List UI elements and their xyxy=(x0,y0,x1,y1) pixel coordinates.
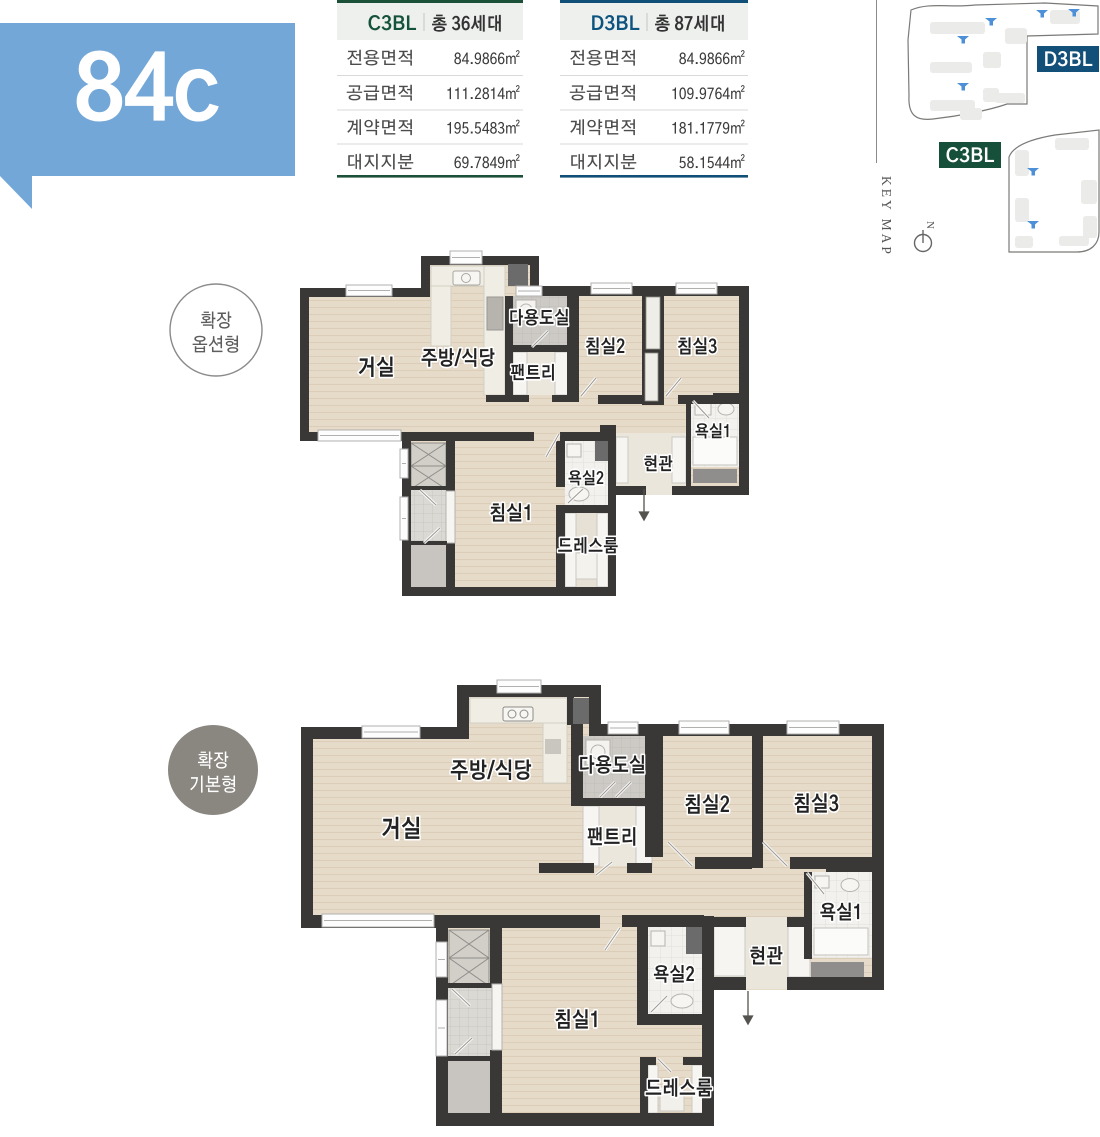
svg-text:N: N xyxy=(924,221,936,229)
